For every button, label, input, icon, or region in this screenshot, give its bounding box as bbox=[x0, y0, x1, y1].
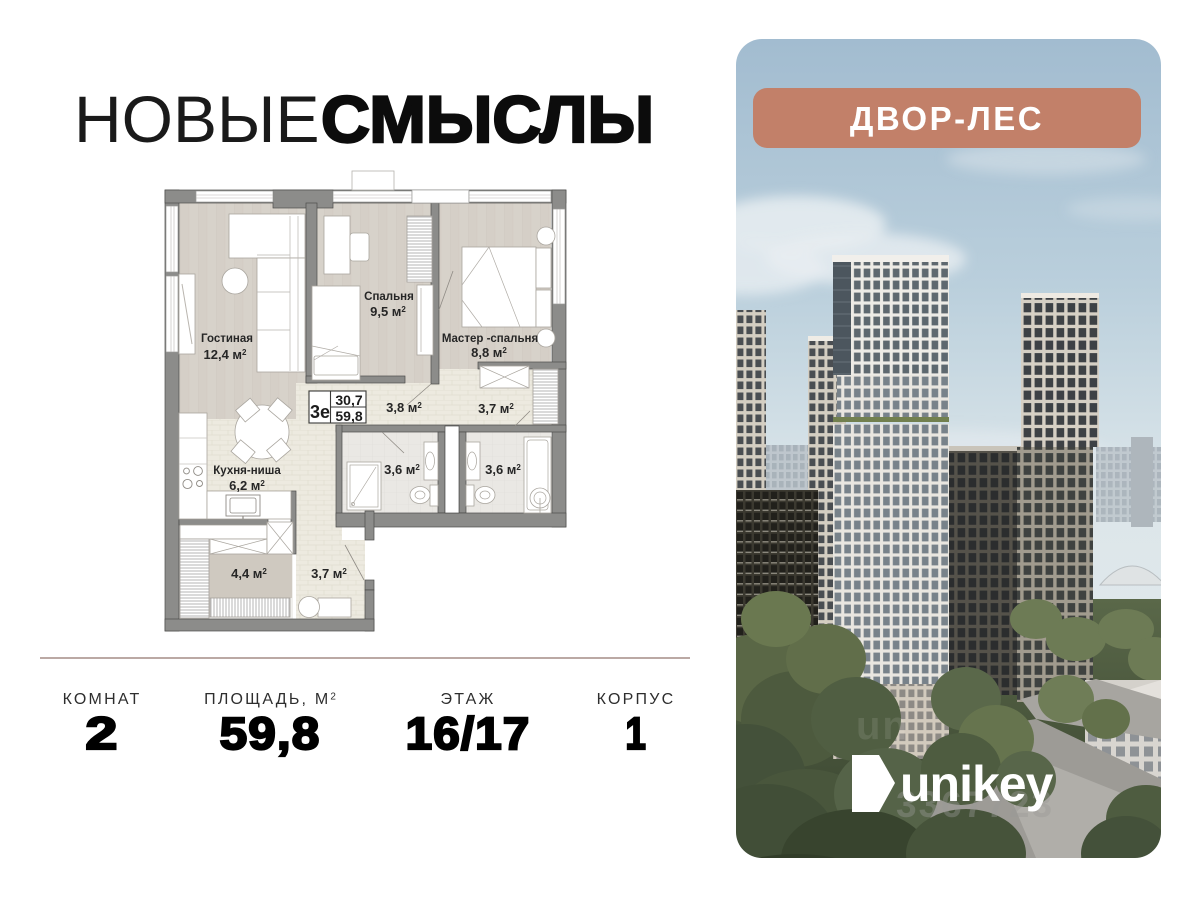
svg-text:3е: 3е bbox=[310, 402, 330, 422]
svg-text:unikey: unikey bbox=[900, 756, 1054, 812]
svg-text:4,4 м2: 4,4 м2 bbox=[231, 566, 267, 581]
svg-text:3,6 м2: 3,6 м2 bbox=[485, 462, 521, 477]
svg-text:Мастер -спальня: Мастер -спальня bbox=[442, 333, 538, 345]
svg-text:un: un bbox=[856, 704, 909, 748]
svg-text:3,7 м2: 3,7 м2 bbox=[311, 566, 347, 581]
svg-text:3,8 м2: 3,8 м2 bbox=[386, 400, 422, 415]
svg-text:6,2 м2: 6,2 м2 bbox=[229, 478, 265, 493]
svg-text:12,4 м2: 12,4 м2 bbox=[204, 347, 248, 362]
svg-text:Спальня: Спальня bbox=[364, 291, 414, 303]
svg-text:3,7 м2: 3,7 м2 bbox=[478, 401, 514, 416]
svg-text:Гостиная: Гостиная bbox=[201, 333, 253, 345]
svg-text:8,8 м2: 8,8 м2 bbox=[471, 345, 507, 360]
svg-text:Кухня-ниша: Кухня-ниша bbox=[213, 465, 281, 477]
svg-text:59,8: 59,8 bbox=[335, 408, 362, 424]
svg-text:ДВОР-ЛЕС: ДВОР-ЛЕС bbox=[850, 100, 1044, 137]
svg-text:3,6 м2: 3,6 м2 bbox=[384, 462, 420, 477]
svg-text:9,5 м2: 9,5 м2 bbox=[370, 304, 406, 319]
svg-text:30,7: 30,7 bbox=[335, 392, 362, 408]
